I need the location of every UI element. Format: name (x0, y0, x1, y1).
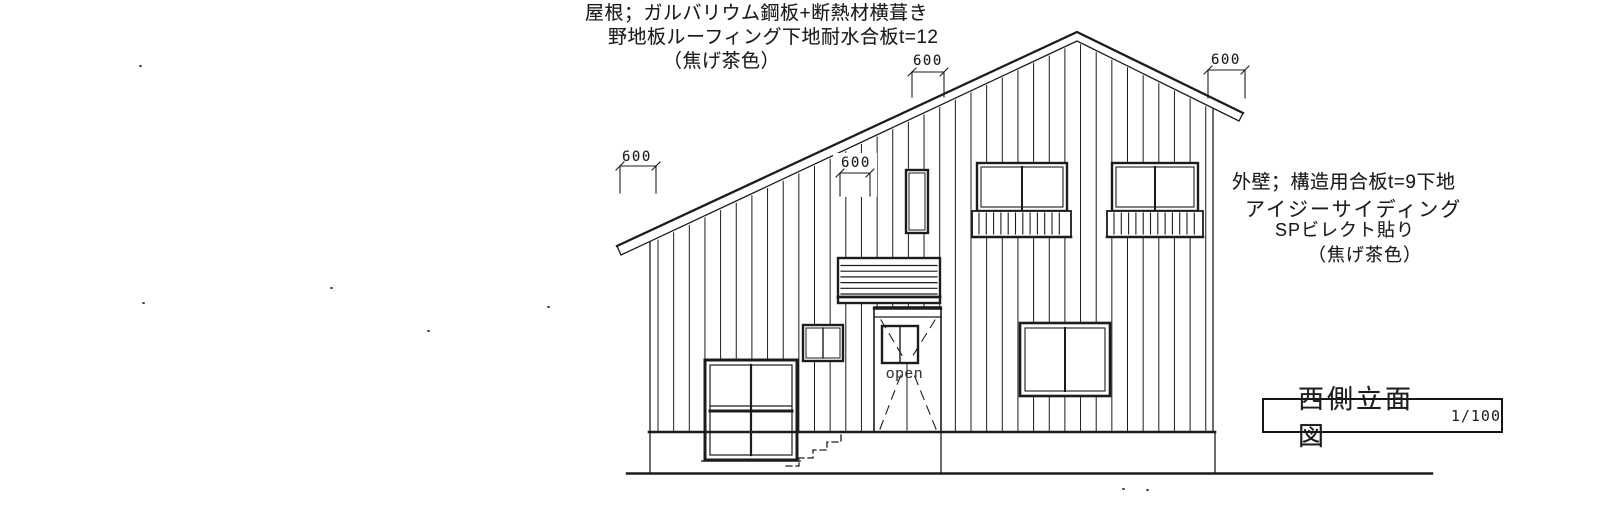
scan-speck (1122, 488, 1125, 490)
scan-speck (139, 65, 142, 67)
drawing-title: 西側立面図 (1298, 379, 1437, 453)
window-lower-right (1020, 323, 1110, 396)
scan-speck (427, 330, 430, 332)
dimension-marker-right (1204, 66, 1249, 98)
wall-spec-line1: 外壁；構造用合板t=9下地 (1232, 173, 1455, 194)
dimension-marker-left (616, 162, 660, 193)
elevation-sheet: 屋根；ガルバリウム鋼板+断熱材横葺き 野地板ルーフィング下地耐水合板t=12 （… (0, 0, 1614, 510)
roof-spec-line1: 屋根；ガルバリウム鋼板+断熱材横葺き (585, 4, 928, 25)
title-block: 西側立面図 1/100 (1262, 398, 1503, 433)
drawing-scale: 1/100 (1451, 407, 1501, 425)
dimension-label-right: 600 (1211, 53, 1241, 68)
door-open-label: open (886, 366, 923, 383)
window-lower-left (702, 360, 800, 461)
scan-speck (330, 287, 333, 289)
scan-speck (547, 306, 550, 308)
wall-spec-line3: SPビレクト貼り (1275, 221, 1415, 241)
scan-speck (142, 302, 145, 304)
scan-speck (1146, 489, 1149, 491)
roof-spec-line3: （焦げ茶色） (663, 52, 780, 73)
dimension-label-middle: 600 (841, 156, 871, 171)
wall-spec-line4: （焦げ茶色） (1308, 246, 1422, 266)
window-narrow (906, 170, 928, 233)
dimension-label-top: 600 (913, 54, 943, 69)
roof-spec-line2: 野地板ルーフィング下地耐水合板t=12 (608, 28, 939, 49)
wall-spec-line2: アイジーサイディング (1245, 199, 1462, 221)
transom-louver (838, 258, 940, 303)
dimension-label-left: 600 (622, 150, 652, 165)
window-small (803, 325, 843, 361)
dimension-marker-top (908, 68, 948, 97)
